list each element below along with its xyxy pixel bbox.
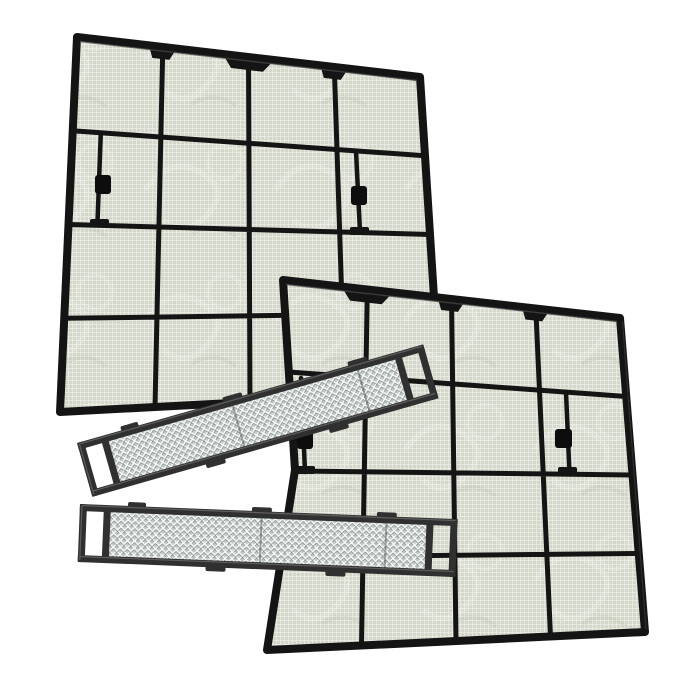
product-image [0,0,700,700]
filter-front [267,280,646,650]
sub-column-left-foot [90,219,109,227]
sub-column-right-foot [350,227,369,235]
clip-tab-right [555,429,572,448]
rail-tab [205,565,225,572]
sub-column-right-foot [558,467,577,475]
clip-tab-right [351,186,367,205]
product-photo [0,0,700,700]
clip-tab-left [95,175,111,194]
rail-tab [325,570,345,577]
